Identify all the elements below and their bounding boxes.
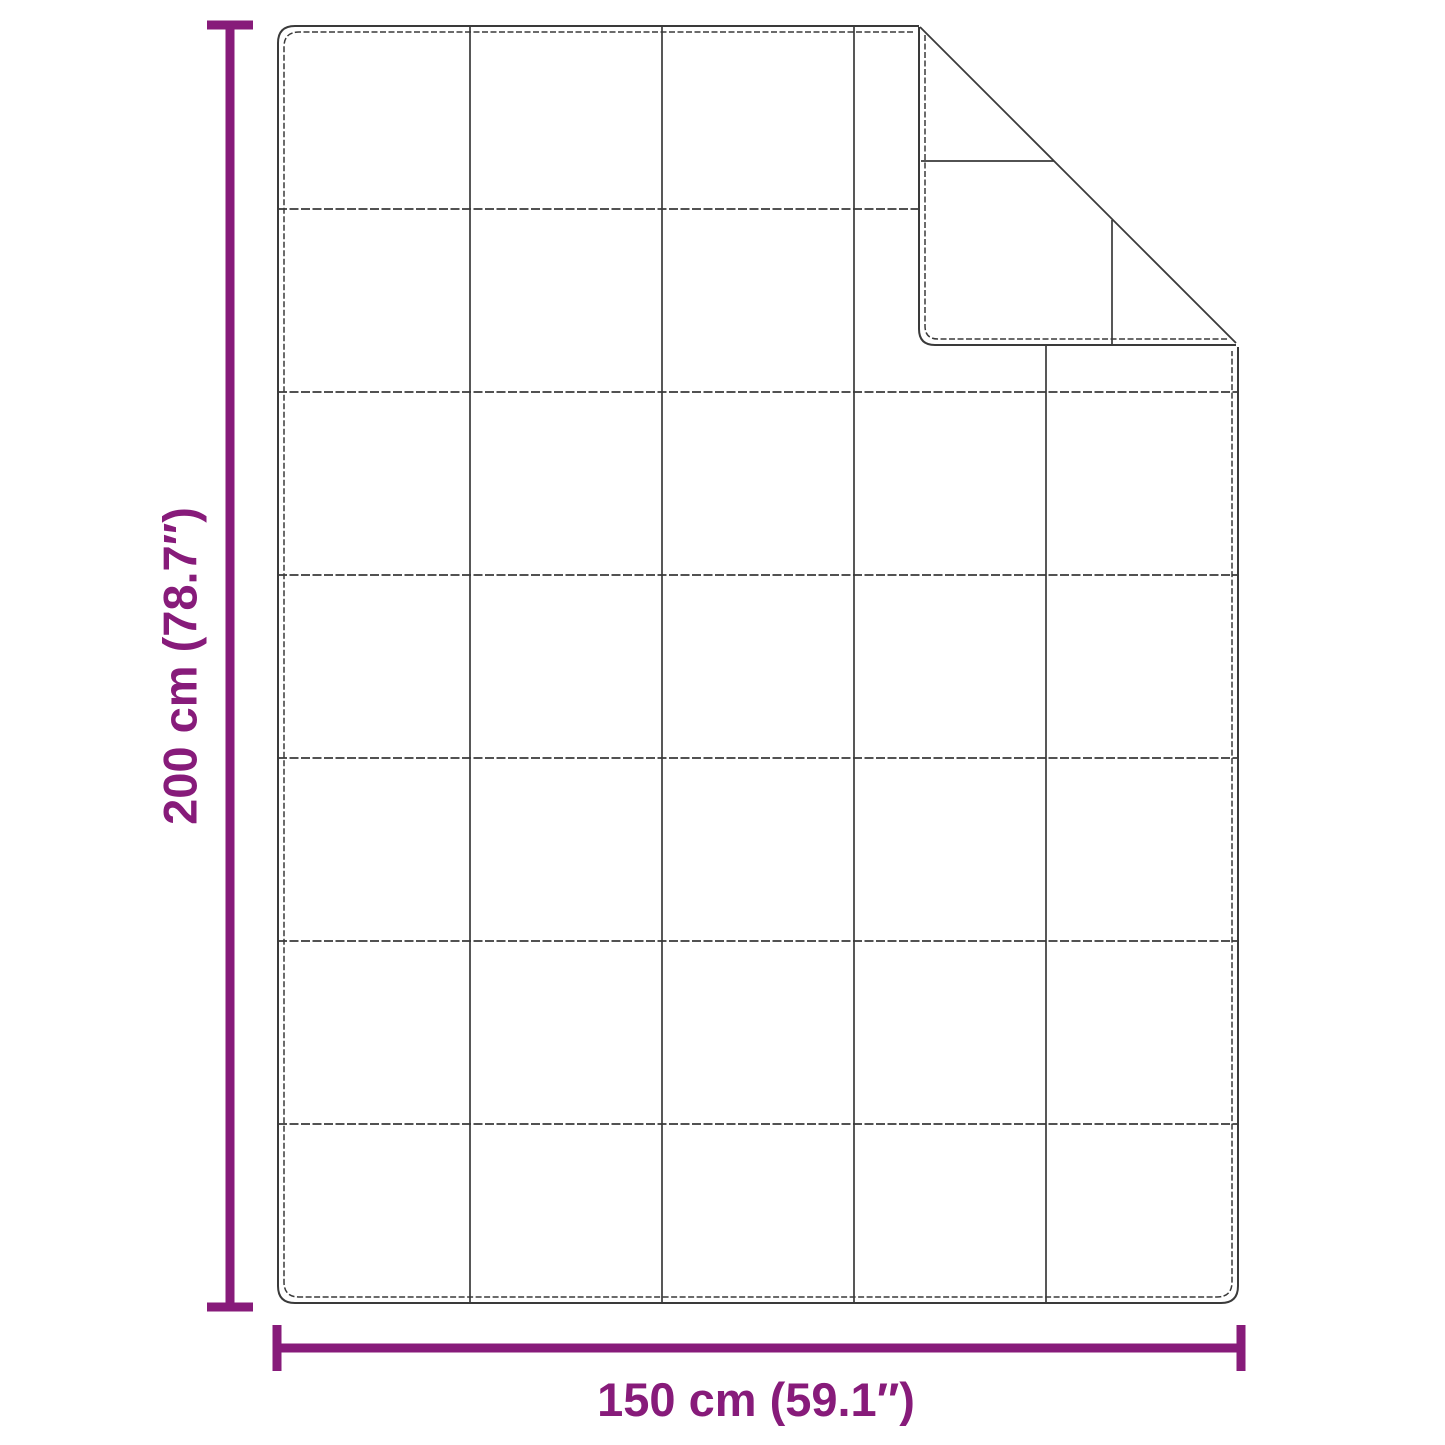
quilt-grid-horizontal-lines <box>278 209 1238 1124</box>
fold-crease <box>920 27 1236 343</box>
dimension-diagram-canvas: 200 cm (78.7″) 150 cm (59.1″) <box>0 0 1445 1445</box>
width-dimension-line <box>277 1325 1241 1371</box>
blanket-outline <box>278 26 1238 1303</box>
width-dimension-label: 150 cm (59.1″) <box>597 1373 915 1426</box>
fold-flap-stitch-seam <box>925 35 1228 339</box>
dimension-annotations <box>207 25 1241 1371</box>
height-dimension-line <box>207 25 253 1307</box>
quilt-grid-vertical-lines <box>470 26 1046 1303</box>
blanket-stitch-seam <box>284 32 1232 1297</box>
fold-flap-grid-lines <box>921 161 1112 344</box>
blanket-drawing <box>278 26 1238 1303</box>
dimension-diagram-svg: 200 cm (78.7″) 150 cm (59.1″) <box>0 0 1445 1445</box>
height-dimension-label: 200 cm (78.7″) <box>153 507 206 825</box>
